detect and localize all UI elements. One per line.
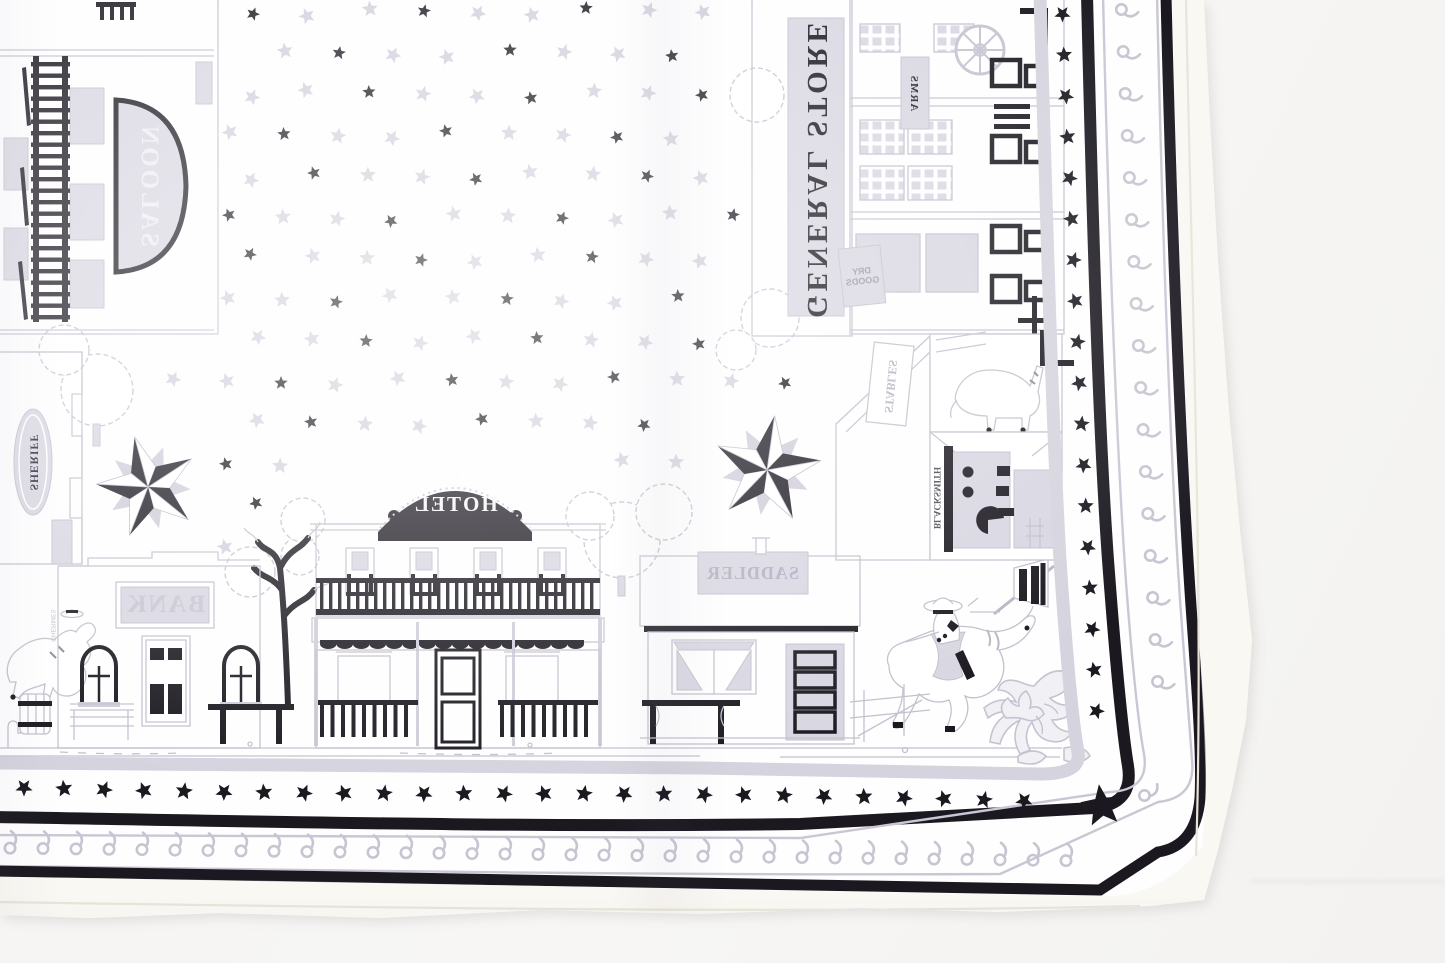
wagon-wheel-icon xyxy=(956,26,1004,74)
dry-goods-signboard xyxy=(838,245,886,307)
saddler-shop xyxy=(640,538,860,744)
general-store xyxy=(752,0,1064,350)
blacksmith-shop xyxy=(930,432,1062,560)
porch-railing xyxy=(320,705,588,737)
general-store-signboard xyxy=(788,18,844,316)
nautical-star xyxy=(718,416,822,519)
scarf: SALOON GENERAL STORE ARMS DRY GOODS STAB… xyxy=(0,0,1445,963)
barrel xyxy=(18,694,52,734)
photo-background: SALOON GENERAL STORE ARMS DRY GOODS STAB… xyxy=(0,0,1445,963)
pennant-flag xyxy=(968,559,1054,614)
arms-signboard xyxy=(901,57,929,129)
saloon-building xyxy=(0,0,218,334)
starfield xyxy=(166,1,792,555)
scarf-wrap: SALOON GENERAL STORE ARMS DRY GOODS STAB… xyxy=(0,0,1445,963)
bank-signboard xyxy=(121,587,209,623)
hotel-building xyxy=(310,466,606,748)
saloon-signboard xyxy=(116,100,186,272)
border-frame xyxy=(0,0,1270,963)
scarf-art xyxy=(0,0,1445,963)
hotel-signboard xyxy=(378,491,532,541)
nautical-star xyxy=(96,437,192,536)
awning-fringe xyxy=(320,640,584,649)
staircase-icon xyxy=(31,62,70,319)
saddler-signboard xyxy=(698,552,808,594)
